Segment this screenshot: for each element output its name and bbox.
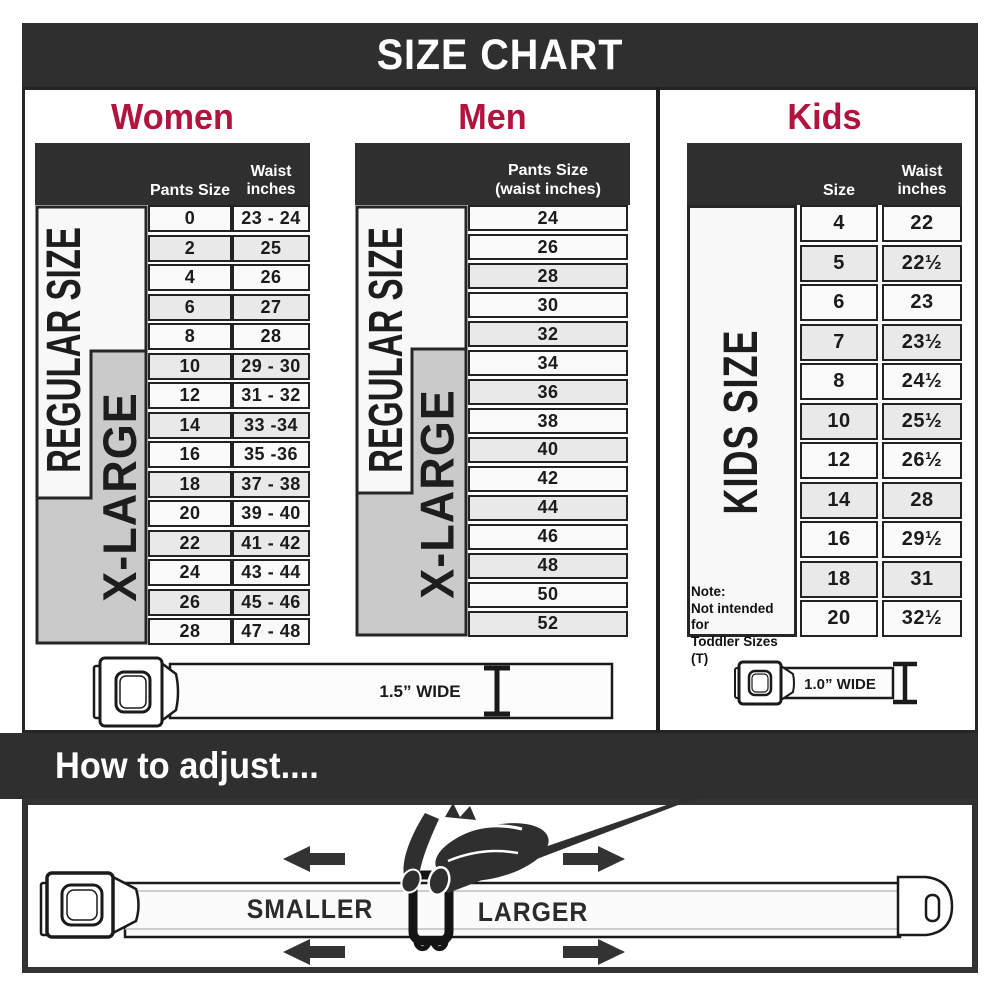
kids-width-measure-icon — [893, 664, 917, 702]
arrow-left-icon — [283, 939, 345, 965]
table-cell: 32½ — [882, 600, 962, 637]
table-cell: 26 — [148, 589, 232, 616]
table-cell: 18 — [148, 471, 232, 498]
women-header-pants-size: Pants Size — [148, 182, 232, 200]
table-cell: 16 — [148, 441, 232, 468]
kids-header-waist: Waist inches — [882, 163, 962, 199]
table-cell: 2 — [148, 235, 232, 262]
table-cell: 14 — [800, 482, 878, 519]
smaller-label: SMALLER — [236, 894, 383, 925]
table-cell: 0 — [148, 205, 232, 232]
table-cell: 27 — [232, 294, 310, 321]
men-header-pants-size: Pants Size (waist inches) — [468, 161, 628, 199]
how-to-adjust-band: How to adjust.... — [0, 733, 978, 799]
table-cell: 20 — [800, 600, 878, 637]
table-cell: 24 — [468, 205, 628, 231]
kids-waist-column: 2222½2323½24½25½26½2829½3132½ — [882, 205, 962, 637]
men-regular-size-label: REGULAR SIZE — [354, 205, 418, 495]
kids-size-label: KIDS SIZE — [711, 292, 770, 552]
size-chart-page: SIZE CHART Women Men Kids Pants Size Wai… — [0, 0, 1000, 1000]
table-cell: 28 — [232, 323, 310, 350]
section-divider — [656, 87, 660, 733]
how-to-adjust-heading: How to adjust.... — [55, 745, 319, 787]
table-cell: 37 - 38 — [232, 471, 310, 498]
men-section-title: Men — [362, 96, 623, 138]
table-cell: 26 — [232, 264, 310, 291]
table-cell: 23½ — [882, 324, 962, 361]
table-cell: 44 — [468, 495, 628, 521]
arrow-left-icon — [283, 846, 345, 872]
table-cell: 36 — [468, 379, 628, 405]
table-cell: 28 — [148, 618, 232, 645]
table-cell: 40 — [468, 437, 628, 463]
table-cell: 18 — [800, 561, 878, 598]
table-cell: 12 — [800, 442, 878, 479]
size-chart-banner: SIZE CHART — [22, 23, 978, 87]
table-cell: 31 - 32 — [232, 382, 310, 409]
table-cell: 22 — [882, 205, 962, 242]
kids-size-column: 45678101214161820 — [800, 205, 878, 637]
table-cell: 34 — [468, 350, 628, 376]
table-cell: 46 — [468, 524, 628, 550]
table-cell: 22 — [148, 530, 232, 557]
women-section-title: Women — [42, 96, 303, 138]
table-cell: 8 — [800, 363, 878, 400]
table-cell: 35 -36 — [232, 441, 310, 468]
table-cell: 24½ — [882, 363, 962, 400]
table-cell: 45 - 46 — [232, 589, 310, 616]
table-cell: 25 — [232, 235, 310, 262]
table-cell: 32 — [468, 321, 628, 347]
women-regular-size-label: REGULAR SIZE — [32, 205, 96, 495]
table-cell: 24 — [148, 559, 232, 586]
table-cell: 50 — [468, 582, 628, 608]
table-cell: 8 — [148, 323, 232, 350]
table-cell: 30 — [468, 292, 628, 318]
table-cell: 4 — [800, 205, 878, 242]
men-pants-size-column: 242628303234363840424446485052 — [468, 205, 628, 637]
table-cell: 52 — [468, 611, 628, 637]
table-cell: 6 — [800, 284, 878, 321]
table-cell: 10 — [148, 353, 232, 380]
table-cell: 4 — [148, 264, 232, 291]
table-cell: 38 — [468, 408, 628, 434]
table-cell: 39 - 40 — [232, 500, 310, 527]
table-cell: 33 -34 — [232, 412, 310, 439]
table-cell: 29 - 30 — [232, 353, 310, 380]
table-cell: 41 - 42 — [232, 530, 310, 557]
table-cell: 42 — [468, 466, 628, 492]
table-cell: 47 - 48 — [232, 618, 310, 645]
arrow-right-icon — [563, 846, 625, 872]
adult-belt-width-label: 1.5” WIDE — [360, 682, 480, 702]
page-title: SIZE CHART — [60, 23, 940, 87]
women-xlarge-label: X-LARGE — [95, 352, 145, 642]
women-header-waist: Waist inches — [232, 163, 310, 199]
table-cell: 43 - 44 — [232, 559, 310, 586]
table-cell: 6 — [148, 294, 232, 321]
arrow-right-icon — [563, 939, 625, 965]
kids-note: Note: Not intended for Toddler Sizes (T) — [691, 584, 795, 668]
table-cell: 29½ — [882, 521, 962, 558]
table-cell: 7 — [800, 324, 878, 361]
table-cell: 28 — [882, 482, 962, 519]
table-cell: 12 — [148, 382, 232, 409]
table-cell: 23 - 24 — [232, 205, 310, 232]
women-pants-size-column: 0246810121416182022242628 — [148, 205, 232, 645]
women-waist-column: 23 - 242526272829 - 3031 - 3233 -3435 -3… — [232, 205, 310, 645]
table-cell: 31 — [882, 561, 962, 598]
table-cell: 20 — [148, 500, 232, 527]
table-cell: 16 — [800, 521, 878, 558]
table-cell: 5 — [800, 245, 878, 282]
kids-belt-width-label: 1.0” WIDE — [795, 676, 885, 693]
table-cell: 22½ — [882, 245, 962, 282]
table-cell: 23 — [882, 284, 962, 321]
belt-tip-slot — [926, 895, 939, 921]
table-cell: 26½ — [882, 442, 962, 479]
table-cell: 48 — [468, 553, 628, 579]
table-cell: 28 — [468, 263, 628, 289]
table-cell: 14 — [148, 412, 232, 439]
adjust-belt-illustration — [30, 795, 970, 975]
table-cell: 26 — [468, 234, 628, 260]
kids-header-size: Size — [800, 182, 878, 200]
men-xlarge-label: X-LARGE — [413, 349, 463, 639]
larger-label: LARGER — [459, 897, 606, 928]
table-cell: 10 — [800, 403, 878, 440]
table-cell: 25½ — [882, 403, 962, 440]
kids-section-title: Kids — [694, 96, 955, 138]
